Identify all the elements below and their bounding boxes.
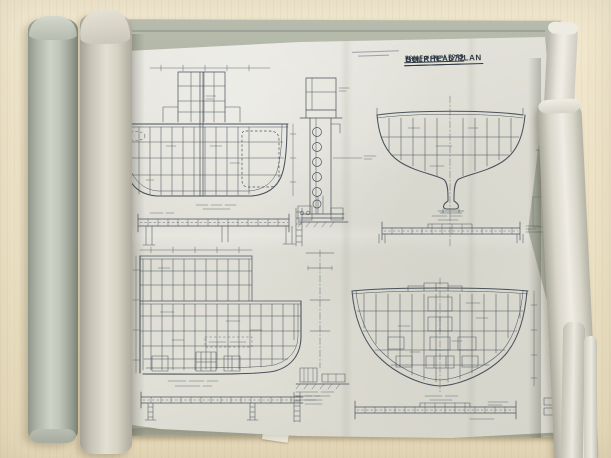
bulkhead-section-lower-left xyxy=(133,247,301,386)
bulkhead-section-upper-left xyxy=(120,65,296,209)
bulkhead-section-upper-right xyxy=(377,96,525,246)
roll-bottom-right-edge xyxy=(584,336,597,458)
roll-left-inner xyxy=(80,14,132,454)
scale-note: SCALE ½ IN = 1 FOOT xyxy=(404,54,465,64)
strip-detail-upper-right xyxy=(379,222,542,243)
roll-shadow xyxy=(130,34,145,436)
girder-column-upper-centre xyxy=(298,78,376,227)
strip-detail-lower-left xyxy=(141,392,322,422)
roll-right-upper xyxy=(544,23,578,110)
photo-frame: SHIP Nº 572 BULKHEAD PLAN SCALE ½ IN = 1… xyxy=(0,0,611,458)
roll-left-outer xyxy=(28,18,78,442)
keel-pedestal-lower-centre xyxy=(296,250,349,400)
backing-sheet-linework xyxy=(112,31,557,227)
strip-detail-upper-left xyxy=(138,208,302,246)
roll-bottom-right xyxy=(561,322,585,458)
bulkhead-section-lower-right xyxy=(352,278,537,400)
approval-stamp xyxy=(350,48,404,62)
